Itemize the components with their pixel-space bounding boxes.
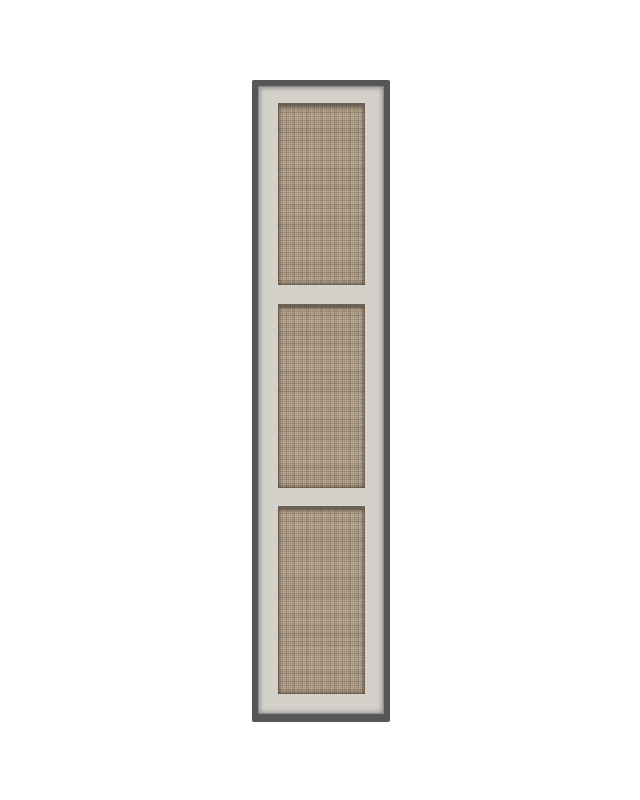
rattan-panel-middle <box>278 304 365 488</box>
image-canvas <box>0 0 640 800</box>
rattan-panel-bottom <box>278 506 365 694</box>
cabinet-door <box>252 80 390 722</box>
rattan-panel-top <box>278 103 365 285</box>
door-frame <box>258 86 384 714</box>
